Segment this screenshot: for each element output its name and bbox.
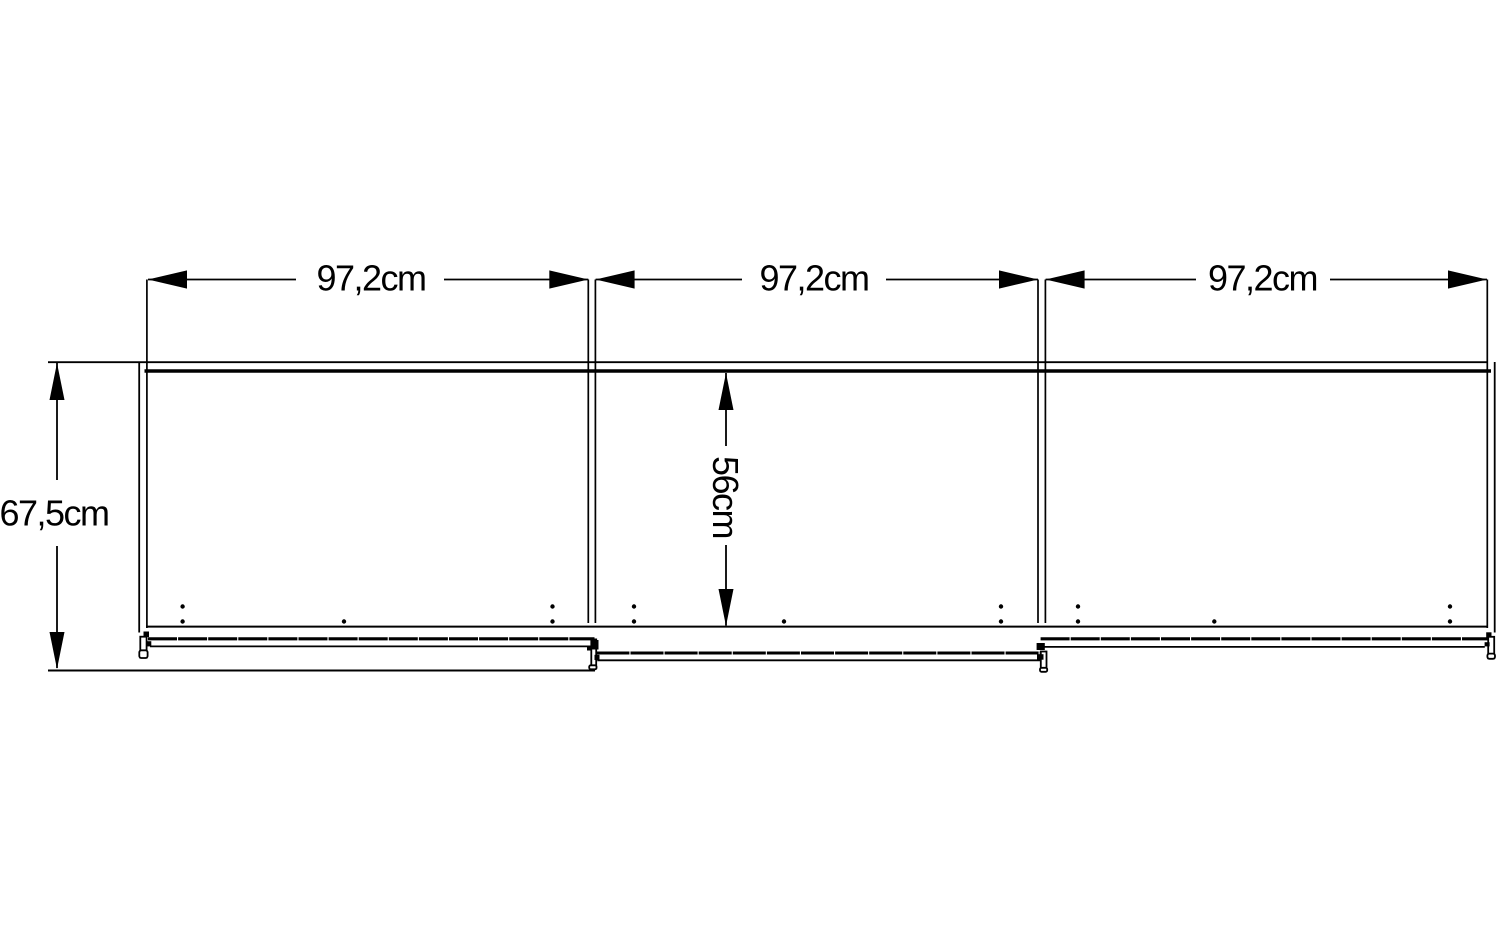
svg-text:97,2cm: 97,2cm [316, 258, 425, 299]
svg-text:67,5cm: 67,5cm [0, 493, 109, 534]
svg-text:56cm: 56cm [705, 456, 746, 538]
svg-text:97,2cm: 97,2cm [1208, 258, 1317, 299]
svg-text:97,2cm: 97,2cm [759, 258, 868, 299]
